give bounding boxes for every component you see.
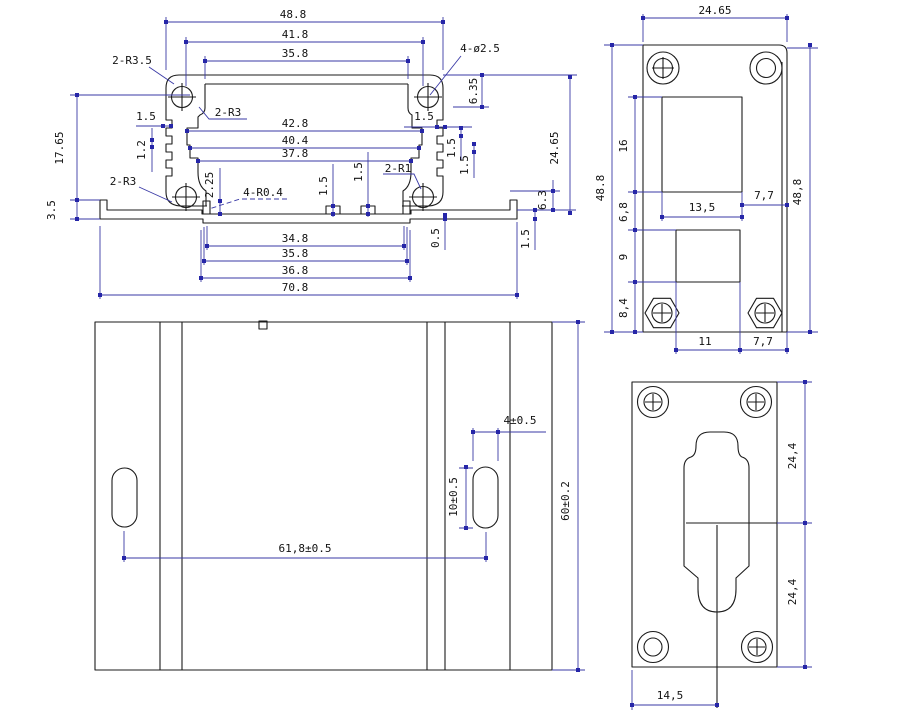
section-view: 48.8 41.8 35.8 4-ø2.5 2-R3.5 1.5 2-R3 6.…: [45, 8, 577, 299]
body-outline: [95, 322, 552, 670]
dim-bottom-w1: 34.8: [282, 232, 309, 245]
section-dim-texts: 48.8 41.8 35.8 4-ø2.5 2-R3.5 1.5 2-R3 6.…: [45, 8, 561, 294]
dim-left-height: 17.65: [53, 131, 66, 164]
rear-plate-view: 24.65 48.8 48,8 16 6,8 9 8,4 13,5 7,7 11…: [594, 4, 818, 354]
screw-bottom-left: [638, 632, 669, 663]
front-plate-dim-texts: 24,4 24,4 14,5: [657, 442, 799, 702]
screw-top-right: [750, 52, 782, 84]
dim-cut2-width: 11: [698, 335, 711, 348]
mount-slot-right: [473, 467, 498, 528]
dim-rib-h1: 1.5: [317, 176, 330, 196]
engineering-drawing: 48.8 41.8 35.8 4-ø2.5 2-R3.5 1.5 2-R3 6.…: [0, 0, 901, 717]
dim-body-height: 60±0.2: [559, 481, 572, 521]
top-view-dim-texts: 61,8±0.5 10±0.5 4±0.5 60±0.2: [279, 414, 572, 555]
dim-slot-distance: 61,8±0.5: [279, 542, 332, 555]
dim-height-right: 48,8: [791, 179, 804, 206]
dim-bottom-w3: 36.8: [282, 264, 309, 277]
center-lines: [686, 523, 777, 708]
cad-drawing-canvas: 48.8 41.8 35.8 4-ø2.5 2-R3.5 1.5 2-R3 6.…: [0, 0, 901, 717]
dim-overall-width: 70.8: [282, 281, 309, 294]
screw-top-right: [741, 387, 772, 418]
mount-slot-left: [112, 468, 137, 527]
dim-fin-right-p2: 1.5: [458, 155, 471, 175]
plate-tabs-ribs: [203, 201, 410, 214]
dim-fin-left: 1.5: [136, 110, 156, 123]
dim-fin-right-p1: 1.5: [445, 138, 458, 158]
dim-mid-width: 41.8: [282, 28, 309, 41]
dim-inner-top-width: 35.8: [282, 47, 309, 60]
dim-cut2-height: 9: [617, 254, 630, 261]
dim-groove-w2: 40.4: [282, 134, 309, 147]
dim-overall-height: 24.65: [548, 131, 561, 164]
dim-right-step: 6.3: [536, 190, 549, 210]
dim-groove-w1: 42.8: [282, 117, 309, 130]
dim-top-width: 48.8: [280, 8, 307, 21]
screw-top-left: [638, 387, 669, 418]
front-plate-outlines: [632, 382, 777, 708]
dim-right-bottom-margin: 7,7: [753, 335, 773, 348]
cutout-upper: [662, 97, 742, 192]
dim-fin-right: 1.5: [414, 110, 434, 123]
dim-bottom-margin: 8,4: [617, 298, 630, 318]
extension-lines: [604, 14, 818, 354]
rear-plate-dimensions: [604, 14, 818, 354]
label-lower-radius: 2-R3: [110, 175, 137, 188]
dim-step: 0.5: [429, 228, 442, 248]
dim-lower-half: 24,4: [786, 578, 799, 605]
dim-fin-left-pitch: 1.2: [135, 140, 148, 160]
dim-cut1-width: 13,5: [689, 201, 716, 214]
screw-bottom-left: [645, 298, 679, 327]
dim-center-offset: 14,5: [657, 689, 684, 702]
label-rib-radius: 2-R1: [385, 162, 412, 175]
extension-lines: [124, 322, 585, 670]
dim-rib-h2: 1.5: [352, 162, 365, 182]
base-plate-outline: [100, 200, 517, 223]
dim-tab-height: 2.25: [203, 172, 216, 199]
front-plate-view: 24,4 24,4 14,5: [632, 382, 812, 710]
cutout-lower: [676, 230, 740, 282]
dim-gap: 6,8: [617, 202, 630, 222]
top-view-dimensions: [124, 322, 585, 670]
dim-upper-half: 24,4: [786, 442, 799, 469]
top-view-outlines: [95, 321, 552, 670]
dim-bottom-w2: 35.8: [282, 247, 309, 260]
screw-bottom-right: [742, 632, 773, 663]
dim-height-left: 48.8: [594, 175, 607, 202]
label-upper-radius: 2-R3: [215, 106, 242, 119]
label-corner-radius: 2-R3.5: [112, 54, 152, 67]
screw-top-left: [647, 52, 679, 84]
dim-right-margin: 7,7: [754, 189, 774, 202]
dim-plate-thickness: 1.5: [519, 229, 532, 249]
rear-plate-dim-texts: 24.65 48.8 48,8 16 6,8 9 8,4 13,5 7,7 11…: [594, 4, 804, 348]
top-view: 61,8±0.5 10±0.5 4±0.5 60±0.2: [95, 321, 585, 670]
dim-lip-height: 3.5: [45, 200, 58, 220]
dim-slot-width: 4±0.5: [503, 414, 536, 427]
dim-cut1-height: 16: [617, 139, 630, 152]
clip-leader-dashed: [209, 199, 287, 209]
dim-plate-width: 24.65: [698, 4, 731, 17]
dim-slot-height: 10±0.5: [447, 477, 460, 517]
dim-depth-right: 6.35: [467, 78, 480, 105]
dim-inner-width: 37.8: [282, 147, 309, 160]
label-holes: 4-ø2.5: [460, 42, 500, 55]
plate-outline: [632, 382, 777, 667]
screw-bottom-right: [748, 298, 782, 327]
label-clip-radius: 4-R0.4: [243, 186, 283, 199]
